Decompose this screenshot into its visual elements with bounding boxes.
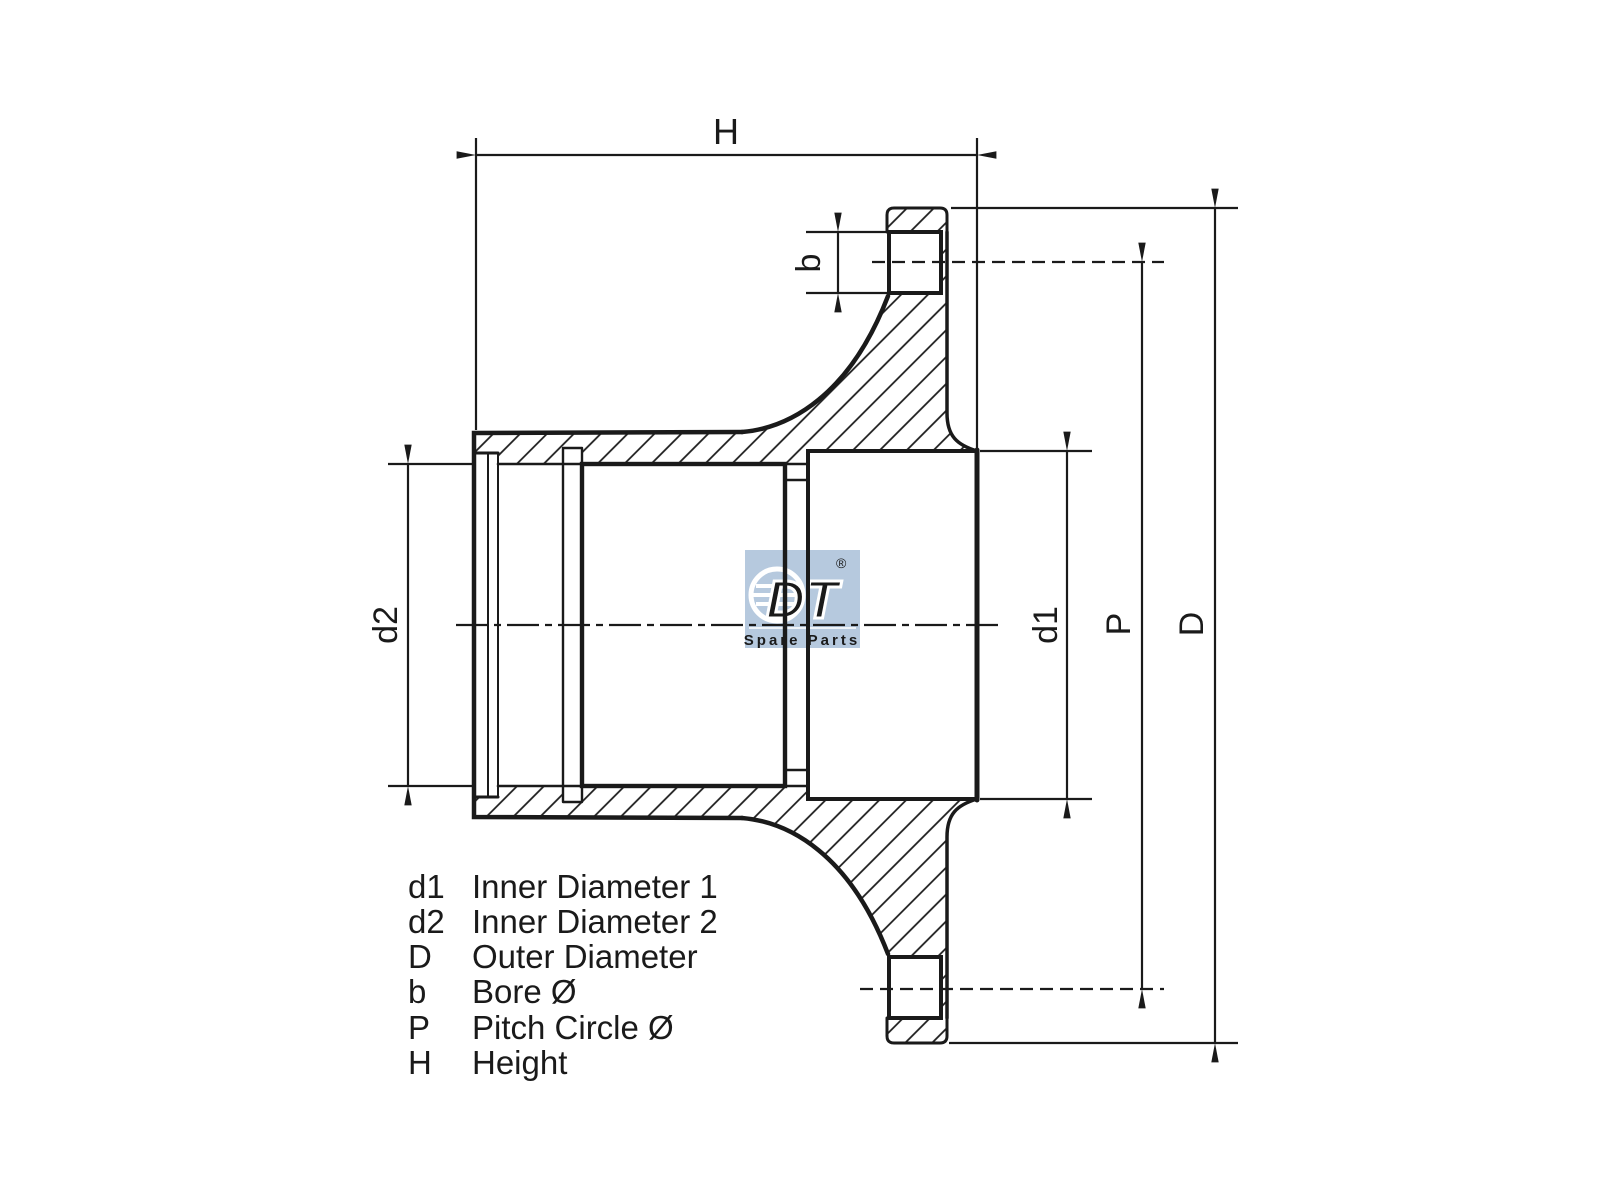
flange-cap-top-section bbox=[887, 208, 947, 232]
dimension-label-p: P bbox=[1100, 613, 1138, 636]
legend-symbol: b bbox=[408, 973, 426, 1010]
dt-logo-registered-mark: ® bbox=[836, 555, 847, 571]
dimension-label-h: H bbox=[713, 111, 739, 152]
technical-drawing-page: DT ® Spare Parts bbox=[0, 0, 1600, 1200]
dt-logo-brand-text: DT bbox=[766, 570, 842, 630]
legend-symbol: P bbox=[408, 1009, 430, 1046]
legend-description: Inner Diameter 1 bbox=[472, 868, 718, 905]
dt-logo-watermark: DT ® Spare Parts bbox=[744, 550, 860, 649]
legend-description: Pitch Circle Ø bbox=[472, 1009, 674, 1046]
legend-symbol: D bbox=[408, 938, 432, 975]
legend-description: Outer Diameter bbox=[472, 938, 698, 975]
legend-description: Bore Ø bbox=[472, 973, 577, 1010]
dimension-label-d1: d1 bbox=[1027, 606, 1065, 644]
legend-symbol: d1 bbox=[408, 868, 445, 905]
flange-cap-bottom-section bbox=[887, 1018, 947, 1043]
dimension-label-b: b bbox=[790, 254, 828, 273]
hub-technical-drawing: DT ® Spare Parts bbox=[0, 0, 1600, 1200]
dimension-label-d: D bbox=[1173, 612, 1211, 637]
bore-step-notch-top bbox=[563, 448, 582, 464]
legend-symbol: d2 bbox=[408, 903, 445, 940]
bolt-hole-bottom bbox=[889, 957, 941, 1018]
legend-description: Height bbox=[472, 1044, 567, 1081]
dt-logo-subtitle: Spare Parts bbox=[744, 632, 860, 649]
dimension-label-d2: d2 bbox=[367, 606, 405, 644]
legend-description: Inner Diameter 2 bbox=[472, 903, 718, 940]
legend-symbol: H bbox=[408, 1044, 432, 1081]
bore-step-notch-bottom bbox=[563, 786, 582, 802]
